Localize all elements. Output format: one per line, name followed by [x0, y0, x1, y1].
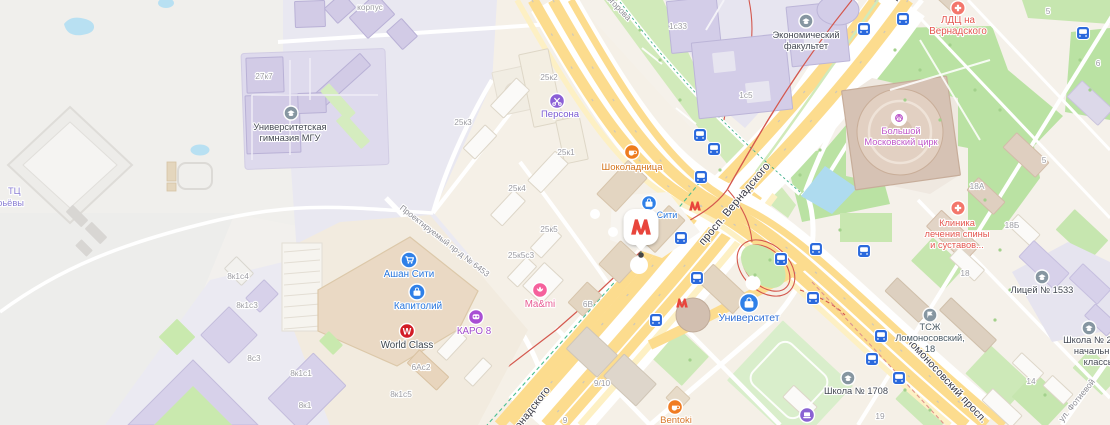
svg-text:Капитолий: Капитолий — [394, 301, 442, 312]
svg-text:9: 9 — [563, 415, 568, 425]
svg-text:КАРО 8: КАРО 8 — [457, 326, 492, 337]
svg-text:Клиника: Клиника — [939, 218, 976, 228]
svg-text:25к5с3: 25к5с3 — [508, 250, 535, 260]
svg-text:Экономический: Экономический — [772, 30, 839, 40]
svg-text:6: 6 — [1096, 58, 1101, 68]
svg-text:5: 5 — [1042, 155, 1047, 165]
svg-text:ЛДЦ на: ЛДЦ на — [941, 15, 975, 26]
svg-text:25к4: 25к4 — [508, 183, 526, 193]
svg-text:и суставов...: и суставов... — [930, 240, 984, 250]
svg-text:14: 14 — [1026, 376, 1036, 386]
svg-text:классы: классы — [1084, 357, 1110, 367]
svg-text:1с33: 1с33 — [669, 21, 687, 31]
svg-text:Университет: Университет — [718, 312, 779, 324]
svg-text:25к5: 25к5 — [540, 224, 558, 234]
svg-text:факультет: факультет — [784, 41, 829, 51]
svg-text:W: W — [403, 327, 412, 337]
svg-text:гимназия МГУ: гимназия МГУ — [260, 133, 321, 143]
svg-text:Лицей № 1533: Лицей № 1533 — [1011, 285, 1074, 295]
svg-text:5: 5 — [1046, 6, 1051, 16]
svg-text:19: 19 — [875, 411, 885, 421]
svg-text:25к3: 25к3 — [454, 117, 472, 127]
svg-text:Школа № 20: Школа № 20 — [1063, 335, 1110, 345]
svg-text:Сити: Сити — [657, 210, 678, 220]
svg-text:Ломоносовский,: Ломоносовский, — [895, 333, 965, 343]
svg-text:Школа № 1708: Школа № 1708 — [824, 386, 888, 396]
svg-text:6В: 6В — [583, 299, 594, 309]
svg-text:6Ас2: 6Ас2 — [412, 362, 431, 372]
svg-text:Университетская: Университетская — [253, 122, 326, 132]
svg-text:корпус: корпус — [357, 2, 383, 12]
svg-text:Большой: Большой — [881, 126, 920, 136]
svg-text:8к1: 8к1 — [299, 400, 312, 410]
svg-text:Вернадского: Вернадского — [929, 26, 987, 37]
svg-text:World Class: World Class — [381, 340, 434, 351]
svg-text:ТЦ: ТЦ — [8, 186, 21, 196]
svg-text:8к1с4: 8к1с4 — [227, 271, 249, 281]
svg-text:Шоколадница: Шоколадница — [602, 162, 664, 173]
svg-text:лечения спины: лечения спины — [925, 229, 990, 239]
svg-text:Ашан Сити: Ашан Сити — [384, 269, 434, 280]
svg-text:27к7: 27к7 — [255, 71, 273, 81]
svg-text:9/10: 9/10 — [594, 378, 611, 388]
svg-text:8с3: 8с3 — [247, 353, 261, 363]
svg-text:орьёвы: орьёвы — [0, 198, 24, 208]
svg-text:8к1с3: 8к1с3 — [236, 300, 258, 310]
svg-text:25к1: 25к1 — [557, 147, 575, 157]
svg-text:Московский цирк: Московский цирк — [864, 137, 938, 147]
svg-text:Ma&mi: Ma&mi — [525, 299, 555, 310]
svg-text:18Б: 18Б — [1005, 220, 1020, 230]
svg-text:18А: 18А — [970, 181, 985, 191]
svg-text:1с5: 1с5 — [739, 90, 753, 100]
svg-text:Bentoki: Bentoki — [660, 415, 692, 425]
svg-text:18: 18 — [960, 268, 970, 278]
svg-text:25к2: 25к2 — [540, 72, 558, 82]
svg-text:8к1с1: 8к1с1 — [290, 368, 312, 378]
svg-text:начальны: начальны — [1074, 346, 1110, 356]
svg-text:8к1с5: 8к1с5 — [390, 389, 412, 399]
svg-text:Персона: Персона — [541, 109, 580, 120]
svg-text:18: 18 — [925, 344, 935, 354]
svg-text:ТСЖ: ТСЖ — [920, 322, 941, 332]
